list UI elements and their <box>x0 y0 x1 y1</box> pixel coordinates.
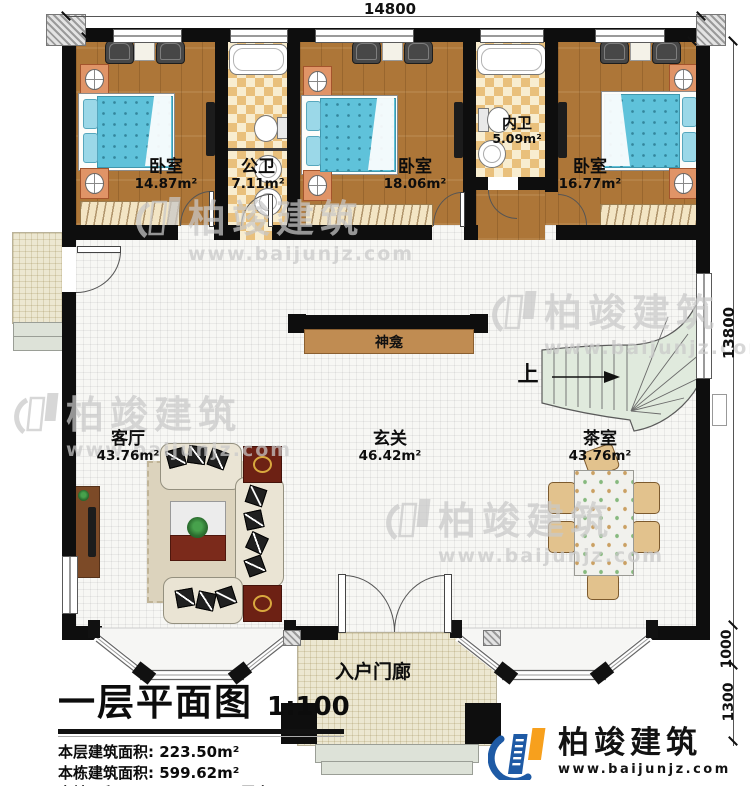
nightstand <box>80 168 109 199</box>
tv <box>558 102 567 158</box>
sofa-pillow <box>175 588 196 609</box>
window <box>113 29 182 43</box>
dimension-porch-label: 1000 <box>719 629 735 669</box>
room-label-foyer: 玄关46.42m² <box>348 430 432 464</box>
bed-pillow <box>306 101 321 131</box>
door-leaf <box>77 246 121 253</box>
door-leaf <box>460 192 465 227</box>
corner-pillar <box>696 14 726 46</box>
room-label-bedroom2: 卧室18.06m² <box>375 158 455 192</box>
exterior-unit-pad <box>712 394 727 426</box>
shrine-shelf: 神龛 <box>304 329 474 354</box>
exterior-wall-bottom <box>296 626 338 640</box>
shrine-label: 神龛 <box>375 332 403 352</box>
bed-pillow <box>83 133 98 163</box>
floor-plan-canvas: 14800 13800 1000 1300 <box>0 0 750 786</box>
room-label-bedroom1: 卧室14.87m² <box>126 158 206 192</box>
plan-title: 一层平面图 <box>58 672 253 726</box>
nightstand <box>80 64 109 95</box>
window <box>315 29 414 43</box>
tea-chair <box>632 521 660 553</box>
plant <box>78 490 89 501</box>
porch-pad <box>483 630 501 646</box>
sofa-pillow <box>187 445 207 465</box>
bath-divider-wall <box>228 148 287 151</box>
bedroom-side-table <box>382 42 403 61</box>
bed-pillow <box>682 97 697 127</box>
tv <box>206 102 215 156</box>
bed-pillow <box>83 99 98 129</box>
dimension-step-label: 1300 <box>721 682 737 722</box>
dimension-height-label: 13800 <box>720 303 738 363</box>
bed-pillow <box>306 136 321 166</box>
curved-staircase <box>530 290 715 440</box>
title-rule <box>58 729 344 734</box>
door-gap-floor <box>545 192 558 225</box>
side-table <box>243 585 282 622</box>
tea-table <box>574 470 634 576</box>
brand-url: www.baijunjz.com <box>558 762 731 777</box>
side-terrace-floor <box>12 232 66 324</box>
toilet-bowl <box>254 115 278 142</box>
side-table <box>243 446 282 483</box>
nightstand <box>669 168 698 199</box>
window <box>595 29 665 43</box>
tv <box>454 102 463 158</box>
window <box>230 29 288 43</box>
wardrobe <box>305 204 433 227</box>
bedroom-side-table <box>134 42 155 61</box>
window <box>480 29 544 43</box>
nightstand <box>303 170 332 201</box>
corner-pillar <box>46 14 86 46</box>
window <box>62 556 78 614</box>
room-label-inner-bath: 内卫5.09m² <box>477 115 557 146</box>
tea-chair <box>548 482 576 514</box>
stat-floor-area: 本层建筑面积: 223.50m² <box>58 742 368 763</box>
door-leaf <box>209 191 214 227</box>
tea-chair <box>548 521 576 553</box>
shrine-beam <box>288 315 488 329</box>
wardrobe <box>80 201 180 226</box>
door-leaf <box>444 574 452 633</box>
partition-wall <box>215 42 228 225</box>
watermark-logo-icon <box>14 388 60 436</box>
brand-logo-icon <box>488 724 550 780</box>
brand-logo: 柏竣建筑 www.baijunjz.com <box>488 724 731 780</box>
bathtub <box>477 44 546 75</box>
sofa-pillow <box>243 509 264 530</box>
stat-building-area: 本栋建筑面积: 599.62m² <box>58 763 368 784</box>
wardrobe <box>600 204 698 227</box>
nightstand <box>303 66 332 97</box>
tv <box>88 507 96 557</box>
door-leaf <box>268 194 273 227</box>
door-gap <box>488 177 518 190</box>
bed-pillow <box>682 132 697 162</box>
room-label-tea: 茶室43.76m² <box>560 430 640 464</box>
interior-wall <box>272 225 432 240</box>
bathtub <box>229 44 288 75</box>
door-leaf <box>338 574 346 633</box>
porch-pad <box>283 630 301 646</box>
partition-wall <box>287 42 300 225</box>
room-label-bedroom3: 卧室16.77m² <box>550 158 630 192</box>
title-rule <box>58 736 344 737</box>
coffee-table-base <box>170 535 226 561</box>
tea-chair <box>632 482 660 514</box>
window <box>696 273 712 379</box>
stairs-up-label: 上 <box>514 363 542 387</box>
dimension-width-label: 14800 <box>345 0 435 18</box>
room-label-living: 客厅43.76m² <box>88 430 168 464</box>
side-terrace-step <box>13 336 66 351</box>
title-block: 一层平面图 1:100 本层建筑面积: 223.50m² 本栋建筑面积: 599… <box>58 672 368 786</box>
interior-wall <box>214 225 240 240</box>
tea-chair <box>587 573 619 600</box>
room-label-public-bath: 公卫7.11m² <box>218 158 298 192</box>
interior-wall <box>464 225 478 240</box>
door-gap <box>62 247 76 292</box>
plan-scale: 1:100 <box>267 692 350 722</box>
bedroom-side-table <box>630 42 651 61</box>
interior-wall <box>556 225 710 240</box>
brand-name: 柏竣建筑 <box>558 728 731 759</box>
plant <box>187 517 208 538</box>
interior-wall <box>62 225 178 240</box>
sofa-pillow <box>195 590 216 611</box>
exterior-wall-left <box>62 28 76 640</box>
bay-window-right <box>450 620 658 706</box>
